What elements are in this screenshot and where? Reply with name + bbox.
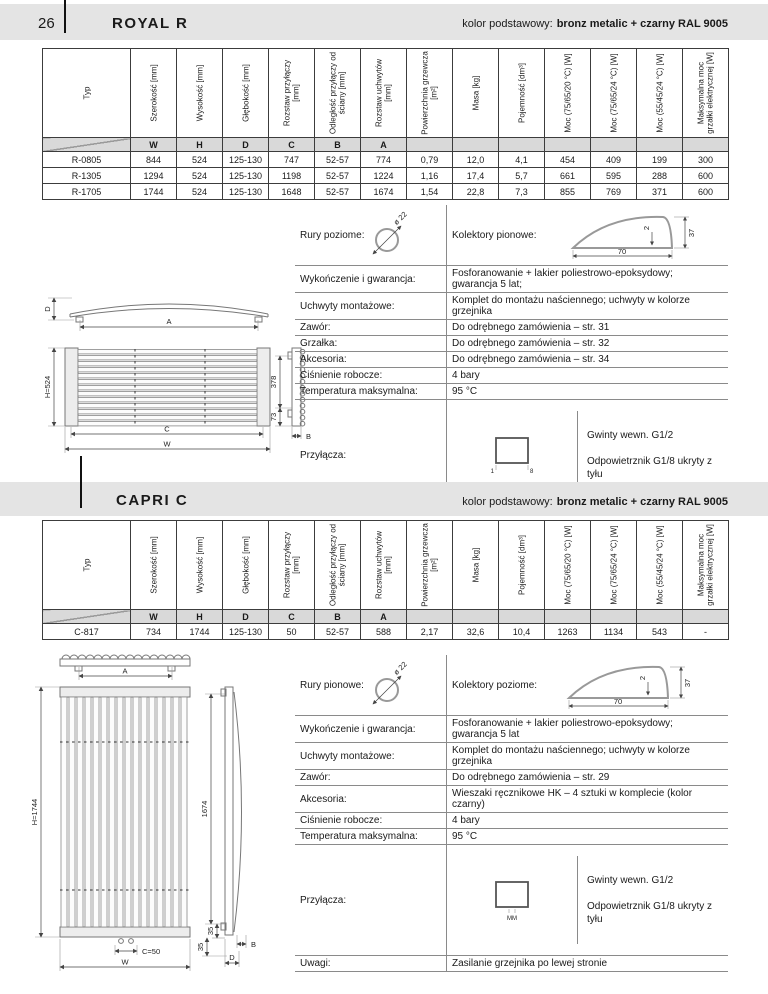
letter-cell bbox=[453, 610, 499, 624]
dim-label: 35 bbox=[196, 943, 205, 951]
cell: R-1305 bbox=[43, 168, 131, 184]
col-header: Rozstaw uchwytów [mm] bbox=[361, 49, 407, 138]
info-value: Do odrębnego zamówienia – str. 34 bbox=[447, 352, 729, 368]
col-header: Powierzchnia grzewcza [m²] bbox=[407, 49, 453, 138]
royal-front-view: H=524 C W bbox=[43, 348, 270, 453]
connection-mark-right: 8 bbox=[530, 469, 534, 475]
info-row: Uchwyty montażowe:Komplet do montażu naś… bbox=[295, 293, 728, 320]
capri-side-view: 1674 35 35 B D bbox=[196, 687, 256, 967]
connection-box-diagram: 1 8 bbox=[480, 434, 544, 476]
letter-cell bbox=[453, 138, 499, 152]
info-label: Uchwyty montażowe: bbox=[295, 743, 447, 770]
dim-label: W bbox=[121, 958, 129, 967]
letter-cell: B bbox=[315, 610, 361, 624]
letter-cell: H bbox=[177, 610, 223, 624]
pipes-cell: Rury pionowe: ø 22 bbox=[295, 655, 447, 716]
info-row: Akcesoria:Wieszaki ręcznikowe HK – 4 szt… bbox=[295, 786, 728, 813]
cell: 1,16 bbox=[407, 168, 453, 184]
col-header-label: Rozstaw przyłączy [mm] bbox=[282, 522, 301, 608]
col-header-label: Masa [kg] bbox=[471, 50, 480, 136]
col-header: Wysokość [mm] bbox=[177, 49, 223, 138]
letter-cell bbox=[499, 138, 545, 152]
capri-technical-drawing: A H=1744 C=50 bbox=[15, 645, 275, 980]
collector-profile-diagram: 70 37 2 bbox=[567, 208, 699, 262]
capri-color-note: kolor podstawowy:bronz metalic + czarny … bbox=[462, 496, 728, 508]
letter-cell bbox=[637, 138, 683, 152]
info-value: Do odrębnego zamówienia – str. 32 bbox=[447, 336, 729, 352]
col-header-label: Rozstaw uchwytów [mm] bbox=[374, 522, 393, 608]
cell: 371 bbox=[637, 184, 683, 200]
info-value: Do odrębnego zamówienia – str. 29 bbox=[447, 770, 729, 786]
cell: 1744 bbox=[131, 184, 177, 200]
cell: 1134 bbox=[591, 624, 637, 640]
diagonal-cell bbox=[43, 138, 131, 152]
connections-value: MM Gwinty wewn. G1/2 Odpowietrznik G1/8 … bbox=[447, 845, 729, 956]
col-header-label: Powierzchnia grzewcza [m²] bbox=[420, 522, 439, 608]
cell: 734 bbox=[131, 624, 177, 640]
cell: R-1705 bbox=[43, 184, 131, 200]
col-header: Moc (55/45/24 °C) [W] bbox=[637, 521, 683, 610]
table-row: R-1705 1744 524 125-130 1648 52-57 1674 … bbox=[43, 184, 729, 200]
col-header: Pojemność [dm³] bbox=[499, 49, 545, 138]
cell: 125-130 bbox=[223, 184, 269, 200]
info-value: Fosforanowanie + lakier poliestrowo-epok… bbox=[447, 716, 729, 743]
info-label: Zawór: bbox=[295, 320, 447, 336]
cell: 454 bbox=[545, 152, 591, 168]
info-label: Zawór: bbox=[295, 770, 447, 786]
letter-cell: A bbox=[361, 610, 407, 624]
col-header-label: Moc (75/65/20 °C) [W] bbox=[563, 50, 572, 136]
pipe-diameter-diagram: ø 22 bbox=[368, 661, 412, 709]
cell: 125-130 bbox=[223, 152, 269, 168]
connections-line1: Gwinty wewn. G1/2 bbox=[587, 429, 728, 442]
connection-mark-left: 1 bbox=[491, 469, 495, 475]
dim-label: 37 bbox=[683, 679, 692, 687]
diagonal-cell bbox=[43, 610, 131, 624]
col-header: Rozstaw uchwytów [mm] bbox=[361, 521, 407, 610]
cell: - bbox=[683, 624, 729, 640]
letter-cell: D bbox=[223, 138, 269, 152]
col-header-label: Maksymalna moc grzałki elektrycznej [W] bbox=[696, 50, 715, 136]
royal-color-note: kolor podstawowy:bronz metalic + czarny … bbox=[462, 18, 728, 30]
dim-label: H=1744 bbox=[30, 799, 39, 825]
letter-cell: B bbox=[315, 138, 361, 152]
info-value: 95 °C bbox=[447, 829, 729, 845]
info-label: Temperatura maksymalna: bbox=[295, 829, 447, 845]
cell: 7,3 bbox=[499, 184, 545, 200]
info-row: Wykończenie i gwarancja:Fosforanowanie +… bbox=[295, 266, 728, 293]
table-row: C-817 734 1744 125-130 50 52-57 588 2,17… bbox=[43, 624, 729, 640]
info-label: Grzałka: bbox=[295, 336, 447, 352]
col-header: Wysokość [mm] bbox=[177, 521, 223, 610]
info-value: Komplet do montażu naściennego; uchwyty … bbox=[447, 293, 729, 320]
info-label: Uchwyty montażowe: bbox=[295, 293, 447, 320]
info-value: Komplet do montażu naściennego; uchwyty … bbox=[447, 743, 729, 770]
connections-line1: Gwinty wewn. G1/2 bbox=[587, 874, 728, 887]
dim-label: C=50 bbox=[142, 947, 160, 956]
col-header: Moc (75/65/24 °C) [W] bbox=[591, 521, 637, 610]
pipe-diameter-label: ø 22 bbox=[392, 661, 409, 677]
table-row: R-1305 1294 524 125-130 1198 52-57 1224 … bbox=[43, 168, 729, 184]
dim-label: 37 bbox=[687, 229, 696, 237]
col-header-label: Wysokość [mm] bbox=[195, 50, 204, 136]
cell: 4,1 bbox=[499, 152, 545, 168]
col-header-label: Głębokość [mm] bbox=[241, 50, 250, 136]
cell: 1648 bbox=[269, 184, 315, 200]
letter-cell bbox=[545, 610, 591, 624]
capri-header-row: Typ Szerokość [mm] Wysokość [mm] Głęboko… bbox=[43, 521, 729, 610]
info-label: Wykończenie i gwarancja: bbox=[295, 716, 447, 743]
col-header: Głębokość [mm] bbox=[223, 521, 269, 610]
letter-cell bbox=[591, 138, 637, 152]
cell: 2,17 bbox=[407, 624, 453, 640]
letter-cell: W bbox=[131, 138, 177, 152]
info-value: 4 bary bbox=[447, 813, 729, 829]
notes-value: Zasilanie grzejnika po lewej stronie bbox=[447, 956, 729, 972]
capri-front-view: H=1744 C=50 W bbox=[30, 687, 190, 971]
dim-label: 1674 bbox=[200, 801, 209, 818]
letter-cell bbox=[499, 610, 545, 624]
dim-label: W bbox=[163, 440, 171, 449]
collectors-label: Kolektory pionowe: bbox=[452, 230, 537, 241]
col-header-label: Powierzchnia grzewcza [m²] bbox=[420, 50, 439, 136]
cell: 10,4 bbox=[499, 624, 545, 640]
cell: 22,8 bbox=[453, 184, 499, 200]
pipes-cell: Rury poziome: ø 22 bbox=[295, 205, 447, 266]
capri-section-divider bbox=[80, 456, 82, 508]
cell: 1294 bbox=[131, 168, 177, 184]
cell: 588 bbox=[361, 624, 407, 640]
letter-cell bbox=[591, 610, 637, 624]
col-header: Moc (55/45/24 °C) [W] bbox=[637, 49, 683, 138]
info-label: Temperatura maksymalna: bbox=[295, 384, 447, 400]
info-row: Wykończenie i gwarancja:Fosforanowanie +… bbox=[295, 716, 728, 743]
col-header-label: Pojemność [dm³] bbox=[517, 522, 526, 608]
dim-label: A bbox=[166, 317, 171, 326]
dim-label: D bbox=[229, 953, 235, 962]
cell: 1224 bbox=[361, 168, 407, 184]
dim-label: 73 bbox=[269, 413, 278, 421]
dim-label: 70 bbox=[617, 247, 625, 256]
col-header-label: Typ bbox=[82, 50, 91, 136]
capri-section-title: CAPRI C bbox=[116, 492, 188, 509]
info-label: Akcesoria: bbox=[295, 786, 447, 813]
col-header-label: Szerokość [mm] bbox=[149, 50, 158, 136]
cell: 543 bbox=[637, 624, 683, 640]
collectors-label: Kolektory poziome: bbox=[452, 680, 537, 691]
pipes-label: Rury poziome: bbox=[300, 230, 364, 241]
info-row: Temperatura maksymalna:95 °C bbox=[295, 384, 728, 400]
col-header: Pojemność [dm³] bbox=[499, 521, 545, 610]
letter-cell bbox=[545, 138, 591, 152]
col-header: Odległość przyłączy od ściany [mm] bbox=[315, 49, 361, 138]
table-row: R-0805 844 524 125-130 747 52-57 774 0,7… bbox=[43, 152, 729, 168]
dim-label: B bbox=[251, 940, 256, 949]
cell: 409 bbox=[591, 152, 637, 168]
info-label: Akcesoria: bbox=[295, 352, 447, 368]
col-header-label: Głębokość [mm] bbox=[241, 522, 250, 608]
royal-info-table: Rury poziome: ø 22 Kolektory pionowe: bbox=[295, 205, 728, 511]
info-value: Do odrębnego zamówienia – str. 31 bbox=[447, 320, 729, 336]
royal-spec-table: Typ Szerokość [mm] Wysokość [mm] Głęboko… bbox=[42, 48, 729, 200]
cell: 52-57 bbox=[315, 152, 361, 168]
col-header-label: Moc (75/65/24 °C) [W] bbox=[609, 50, 618, 136]
royal-section-divider bbox=[64, 0, 66, 33]
info-value: 4 bary bbox=[447, 368, 729, 384]
color-label: kolor podstawowy: bbox=[462, 496, 553, 508]
notes-label: Uwagi: bbox=[295, 956, 447, 972]
col-header-label: Wysokość [mm] bbox=[195, 522, 204, 608]
cell: 288 bbox=[637, 168, 683, 184]
info-row: Temperatura maksymalna:95 °C bbox=[295, 829, 728, 845]
connections-line2: Odpowietrznik G1/8 ukryty z tyłu bbox=[587, 900, 728, 926]
col-header: Maksymalna moc grzałki elektrycznej [W] bbox=[683, 521, 729, 610]
cell: 52-57 bbox=[315, 168, 361, 184]
letter-cell bbox=[683, 138, 729, 152]
connections-row: Przyłącza: MM Gwinty wewn. G1/2 Odpowiet… bbox=[295, 845, 728, 956]
pipes-collectors-row: Rury pionowe: ø 22 Kolektory poziome: bbox=[295, 655, 728, 716]
letter-cell bbox=[407, 610, 453, 624]
dim-label: H=524 bbox=[43, 376, 52, 398]
info-value: 95 °C bbox=[447, 384, 729, 400]
royal-section-title: ROYAL R bbox=[112, 15, 188, 32]
dim-label: 35 bbox=[206, 927, 215, 935]
collector-profile-diagram: 70 37 2 bbox=[563, 658, 695, 712]
cell: 600 bbox=[683, 168, 729, 184]
col-header: Typ bbox=[43, 49, 131, 138]
dim-label: 70 bbox=[614, 697, 622, 706]
letter-cell: D bbox=[223, 610, 269, 624]
capri-spec-table: Typ Szerokość [mm] Wysokość [mm] Głęboko… bbox=[42, 520, 729, 640]
cell: 844 bbox=[131, 152, 177, 168]
col-header-label: Odległość przyłączy od ściany [mm] bbox=[328, 522, 347, 608]
royal-letter-row: W H D C B A bbox=[43, 138, 729, 152]
cell: 600 bbox=[683, 184, 729, 200]
cell: 1744 bbox=[177, 624, 223, 640]
dim-label: 2 bbox=[638, 676, 647, 680]
cell: 1263 bbox=[545, 624, 591, 640]
cell: 52-57 bbox=[315, 184, 361, 200]
info-row: Uchwyty montażowe:Komplet do montażu naś… bbox=[295, 743, 728, 770]
cell: 855 bbox=[545, 184, 591, 200]
color-label: kolor podstawowy: bbox=[462, 18, 553, 30]
pipes-label: Rury pionowe: bbox=[300, 680, 364, 691]
col-header-label: Maksymalna moc grzałki elektrycznej [W] bbox=[696, 522, 715, 608]
cell: 524 bbox=[177, 184, 223, 200]
capri-info-table: Rury pionowe: ø 22 Kolektory poziome: bbox=[295, 655, 728, 972]
letter-cell: A bbox=[361, 138, 407, 152]
dim-label: A bbox=[122, 667, 127, 676]
pipe-diameter-label: ø 22 bbox=[392, 211, 409, 227]
col-header-label: Odległość przyłączy od ściany [mm] bbox=[328, 50, 347, 136]
royal-top-view: D A bbox=[43, 298, 268, 331]
cell: 125-130 bbox=[223, 624, 269, 640]
col-header-label: Rozstaw przyłączy [mm] bbox=[282, 50, 301, 136]
col-header: Odległość przyłączy od ściany [mm] bbox=[315, 521, 361, 610]
col-header-label: Masa [kg] bbox=[471, 522, 480, 608]
info-label: Ciśnienie robocze: bbox=[295, 813, 447, 829]
info-row: Akcesoria:Do odrębnego zamówienia – str.… bbox=[295, 352, 728, 368]
col-header: Moc (75/65/20 °C) [W] bbox=[545, 521, 591, 610]
col-header-label: Rozstaw uchwytów [mm] bbox=[374, 50, 393, 136]
col-header: Masa [kg] bbox=[453, 49, 499, 138]
royal-technical-drawing: D A H=524 C bbox=[30, 210, 330, 460]
col-header-label: Typ bbox=[82, 522, 91, 608]
cell: 125-130 bbox=[223, 168, 269, 184]
col-header-label: Szerokość [mm] bbox=[149, 522, 158, 608]
collectors-cell: Kolektory poziome: 70 37 bbox=[447, 655, 729, 716]
info-row: Ciśnienie robocze:4 bary bbox=[295, 368, 728, 384]
connection-caption: MM bbox=[507, 916, 517, 922]
letter-cell: W bbox=[131, 610, 177, 624]
capri-letter-row: W H D C B A bbox=[43, 610, 729, 624]
col-header-label: Moc (75/65/24 °C) [W] bbox=[609, 522, 618, 608]
col-header: Powierzchnia grzewcza [m²] bbox=[407, 521, 453, 610]
dim-label: C bbox=[164, 425, 170, 434]
capri-top-view: A bbox=[60, 655, 190, 680]
dim-label: 378 bbox=[269, 376, 278, 389]
cell: 1198 bbox=[269, 168, 315, 184]
info-row: Grzałka:Do odrębnego zamówienia – str. 3… bbox=[295, 336, 728, 352]
cell: 12,0 bbox=[453, 152, 499, 168]
cell: R-0805 bbox=[43, 152, 131, 168]
cell: 774 bbox=[361, 152, 407, 168]
cell: 524 bbox=[177, 152, 223, 168]
info-label: Wykończenie i gwarancja: bbox=[295, 266, 447, 293]
letter-cell: C bbox=[269, 610, 315, 624]
col-header-label: Moc (55/45/24 °C) [W] bbox=[655, 522, 664, 608]
col-header: Szerokość [mm] bbox=[131, 521, 177, 610]
info-value: Wieszaki ręcznikowe HK – 4 sztuki w komp… bbox=[447, 786, 729, 813]
info-value: Fosforanowanie + lakier poliestrowo-epok… bbox=[447, 266, 729, 293]
cell: 5,7 bbox=[499, 168, 545, 184]
info-row: Zawór:Do odrębnego zamówienia – str. 29 bbox=[295, 770, 728, 786]
col-header: Szerokość [mm] bbox=[131, 49, 177, 138]
col-header: Głębokość [mm] bbox=[223, 49, 269, 138]
cell: 32,6 bbox=[453, 624, 499, 640]
col-header: Typ bbox=[43, 521, 131, 610]
page-number: 26 bbox=[38, 15, 55, 32]
letter-cell bbox=[407, 138, 453, 152]
col-header: Moc (75/65/20 °C) [W] bbox=[545, 49, 591, 138]
cell: 17,4 bbox=[453, 168, 499, 184]
cell: 199 bbox=[637, 152, 683, 168]
notes-row: Uwagi: Zasilanie grzejnika po lewej stro… bbox=[295, 956, 728, 972]
col-header: Masa [kg] bbox=[453, 521, 499, 610]
cell: 661 bbox=[545, 168, 591, 184]
cell: 50 bbox=[269, 624, 315, 640]
royal-header-row: Typ Szerokość [mm] Wysokość [mm] Głęboko… bbox=[43, 49, 729, 138]
cell: 52-57 bbox=[315, 624, 361, 640]
col-header-label: Moc (55/45/24 °C) [W] bbox=[655, 50, 664, 136]
collectors-cell: Kolektory pionowe: 70 37 bbox=[447, 205, 729, 266]
col-header-label: Pojemność [dm³] bbox=[517, 50, 526, 136]
info-label: Ciśnienie robocze: bbox=[295, 368, 447, 384]
catalog-page: 26 ROYAL R kolor podstawowy:bronz metali… bbox=[0, 0, 768, 994]
cell: C-817 bbox=[43, 624, 131, 640]
info-row: Ciśnienie robocze:4 bary bbox=[295, 813, 728, 829]
letter-cell: H bbox=[177, 138, 223, 152]
pipes-collectors-row: Rury poziome: ø 22 Kolektory pionowe: bbox=[295, 205, 728, 266]
col-header: Rozstaw przyłączy [mm] bbox=[269, 521, 315, 610]
letter-cell bbox=[683, 610, 729, 624]
cell: 769 bbox=[591, 184, 637, 200]
letter-cell: C bbox=[269, 138, 315, 152]
col-header: Maksymalna moc grzałki elektrycznej [W] bbox=[683, 49, 729, 138]
cell: 1,54 bbox=[407, 184, 453, 200]
col-header: Moc (75/65/24 °C) [W] bbox=[591, 49, 637, 138]
color-value: bronz metalic + czarny RAL 9005 bbox=[557, 496, 728, 508]
dim-label: D bbox=[43, 306, 52, 312]
cell: 595 bbox=[591, 168, 637, 184]
pipe-diameter-diagram: ø 22 bbox=[368, 211, 412, 259]
cell: 300 bbox=[683, 152, 729, 168]
col-header: Rozstaw przyłączy [mm] bbox=[269, 49, 315, 138]
cell: 0,79 bbox=[407, 152, 453, 168]
connections-label: Przyłącza: bbox=[295, 845, 447, 956]
info-row: Zawór:Do odrębnego zamówienia – str. 31 bbox=[295, 320, 728, 336]
cell: 747 bbox=[269, 152, 315, 168]
connection-box-diagram: MM bbox=[480, 878, 544, 922]
cell: 1674 bbox=[361, 184, 407, 200]
color-value: bronz metalic + czarny RAL 9005 bbox=[557, 18, 728, 30]
letter-cell bbox=[637, 610, 683, 624]
dim-label: 2 bbox=[642, 226, 651, 230]
connections-line2: Odpowietrznik G1/8 ukryty z tyłu bbox=[587, 455, 728, 481]
cell: 524 bbox=[177, 168, 223, 184]
col-header-label: Moc (75/65/20 °C) [W] bbox=[563, 522, 572, 608]
